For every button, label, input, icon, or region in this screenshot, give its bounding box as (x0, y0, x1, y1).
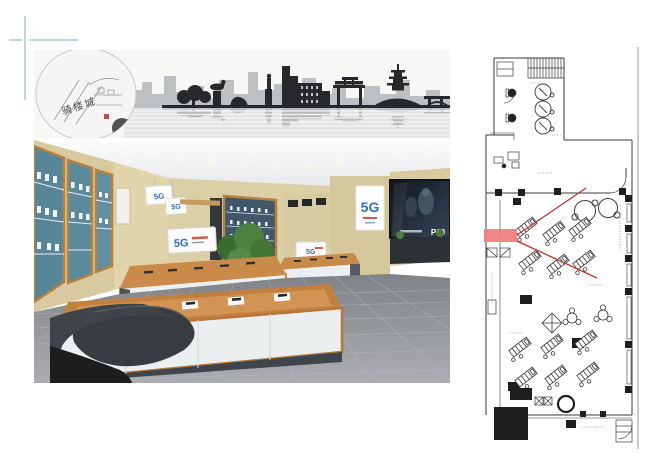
seal-stamp-icon (104, 114, 109, 119)
round-tables-top (535, 84, 554, 134)
store-rendering-scene: 骑楼城 (34, 50, 450, 383)
left-fixtures (487, 248, 510, 314)
pillar-5g-poster: 5G (356, 186, 384, 230)
crop-guide-horizontal-right (29, 39, 78, 41)
office-furniture (494, 62, 519, 168)
display-counter-icons (506, 217, 603, 394)
right-divider-line (637, 47, 639, 449)
video-wall: P20 (390, 180, 450, 264)
hanging-sign-right-logo: 5G (171, 204, 181, 212)
video-wall-small-text (400, 230, 422, 233)
pillar-poster-logo: 5G (361, 199, 380, 215)
hanging-sign-left-logo: 5G (153, 192, 164, 202)
staircase-icon (528, 58, 564, 78)
round-tables-hall (572, 199, 620, 222)
store-rendering-photo: 骑楼城 (34, 50, 450, 383)
floor-plan-drawing (482, 45, 642, 450)
x-boxes (535, 397, 552, 405)
seating-cluster (563, 308, 581, 325)
back-door (116, 188, 130, 224)
seating-cluster (594, 305, 612, 322)
kiosk-diamond (542, 313, 562, 333)
entrance-blocks (494, 388, 606, 440)
poster-red-tagline (363, 217, 377, 219)
viewpoint-marker (484, 229, 517, 242)
crop-guide-vertical (24, 16, 26, 100)
far-table-screen-logo: 5G (306, 249, 316, 256)
video-wall-counter (390, 236, 450, 264)
entry-steps (616, 420, 632, 442)
table-screen-logo: 5G (174, 237, 189, 250)
mural-oval-vignette: 骑楼城 (36, 50, 136, 140)
column-circle (558, 396, 574, 412)
poster-blue-tagline (365, 222, 375, 224)
crop-guide-horizontal-left (9, 39, 22, 41)
